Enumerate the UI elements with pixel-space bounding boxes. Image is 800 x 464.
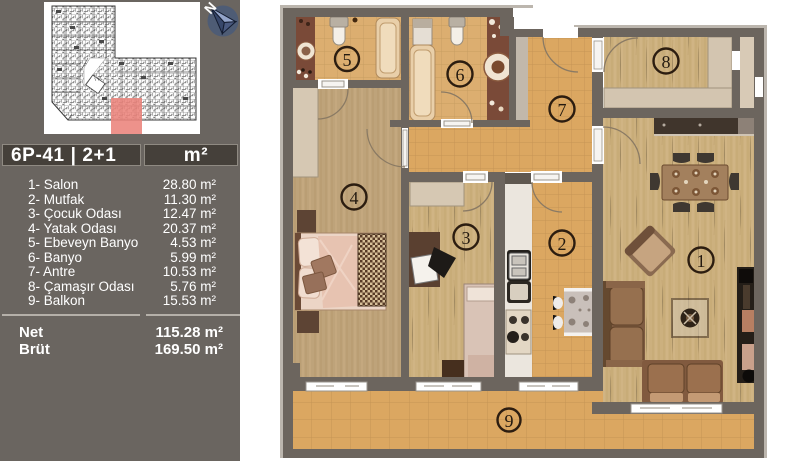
svg-text:7: 7 <box>558 100 567 120</box>
svg-text:9: 9 <box>505 411 514 431</box>
svg-text:2: 2 <box>558 234 567 254</box>
svg-text:5: 5 <box>343 50 352 70</box>
svg-text:8: 8 <box>662 52 671 72</box>
svg-text:4: 4 <box>350 188 359 208</box>
svg-text:1: 1 <box>697 251 706 271</box>
svg-text:6: 6 <box>456 65 465 85</box>
svg-text:3: 3 <box>462 228 471 248</box>
